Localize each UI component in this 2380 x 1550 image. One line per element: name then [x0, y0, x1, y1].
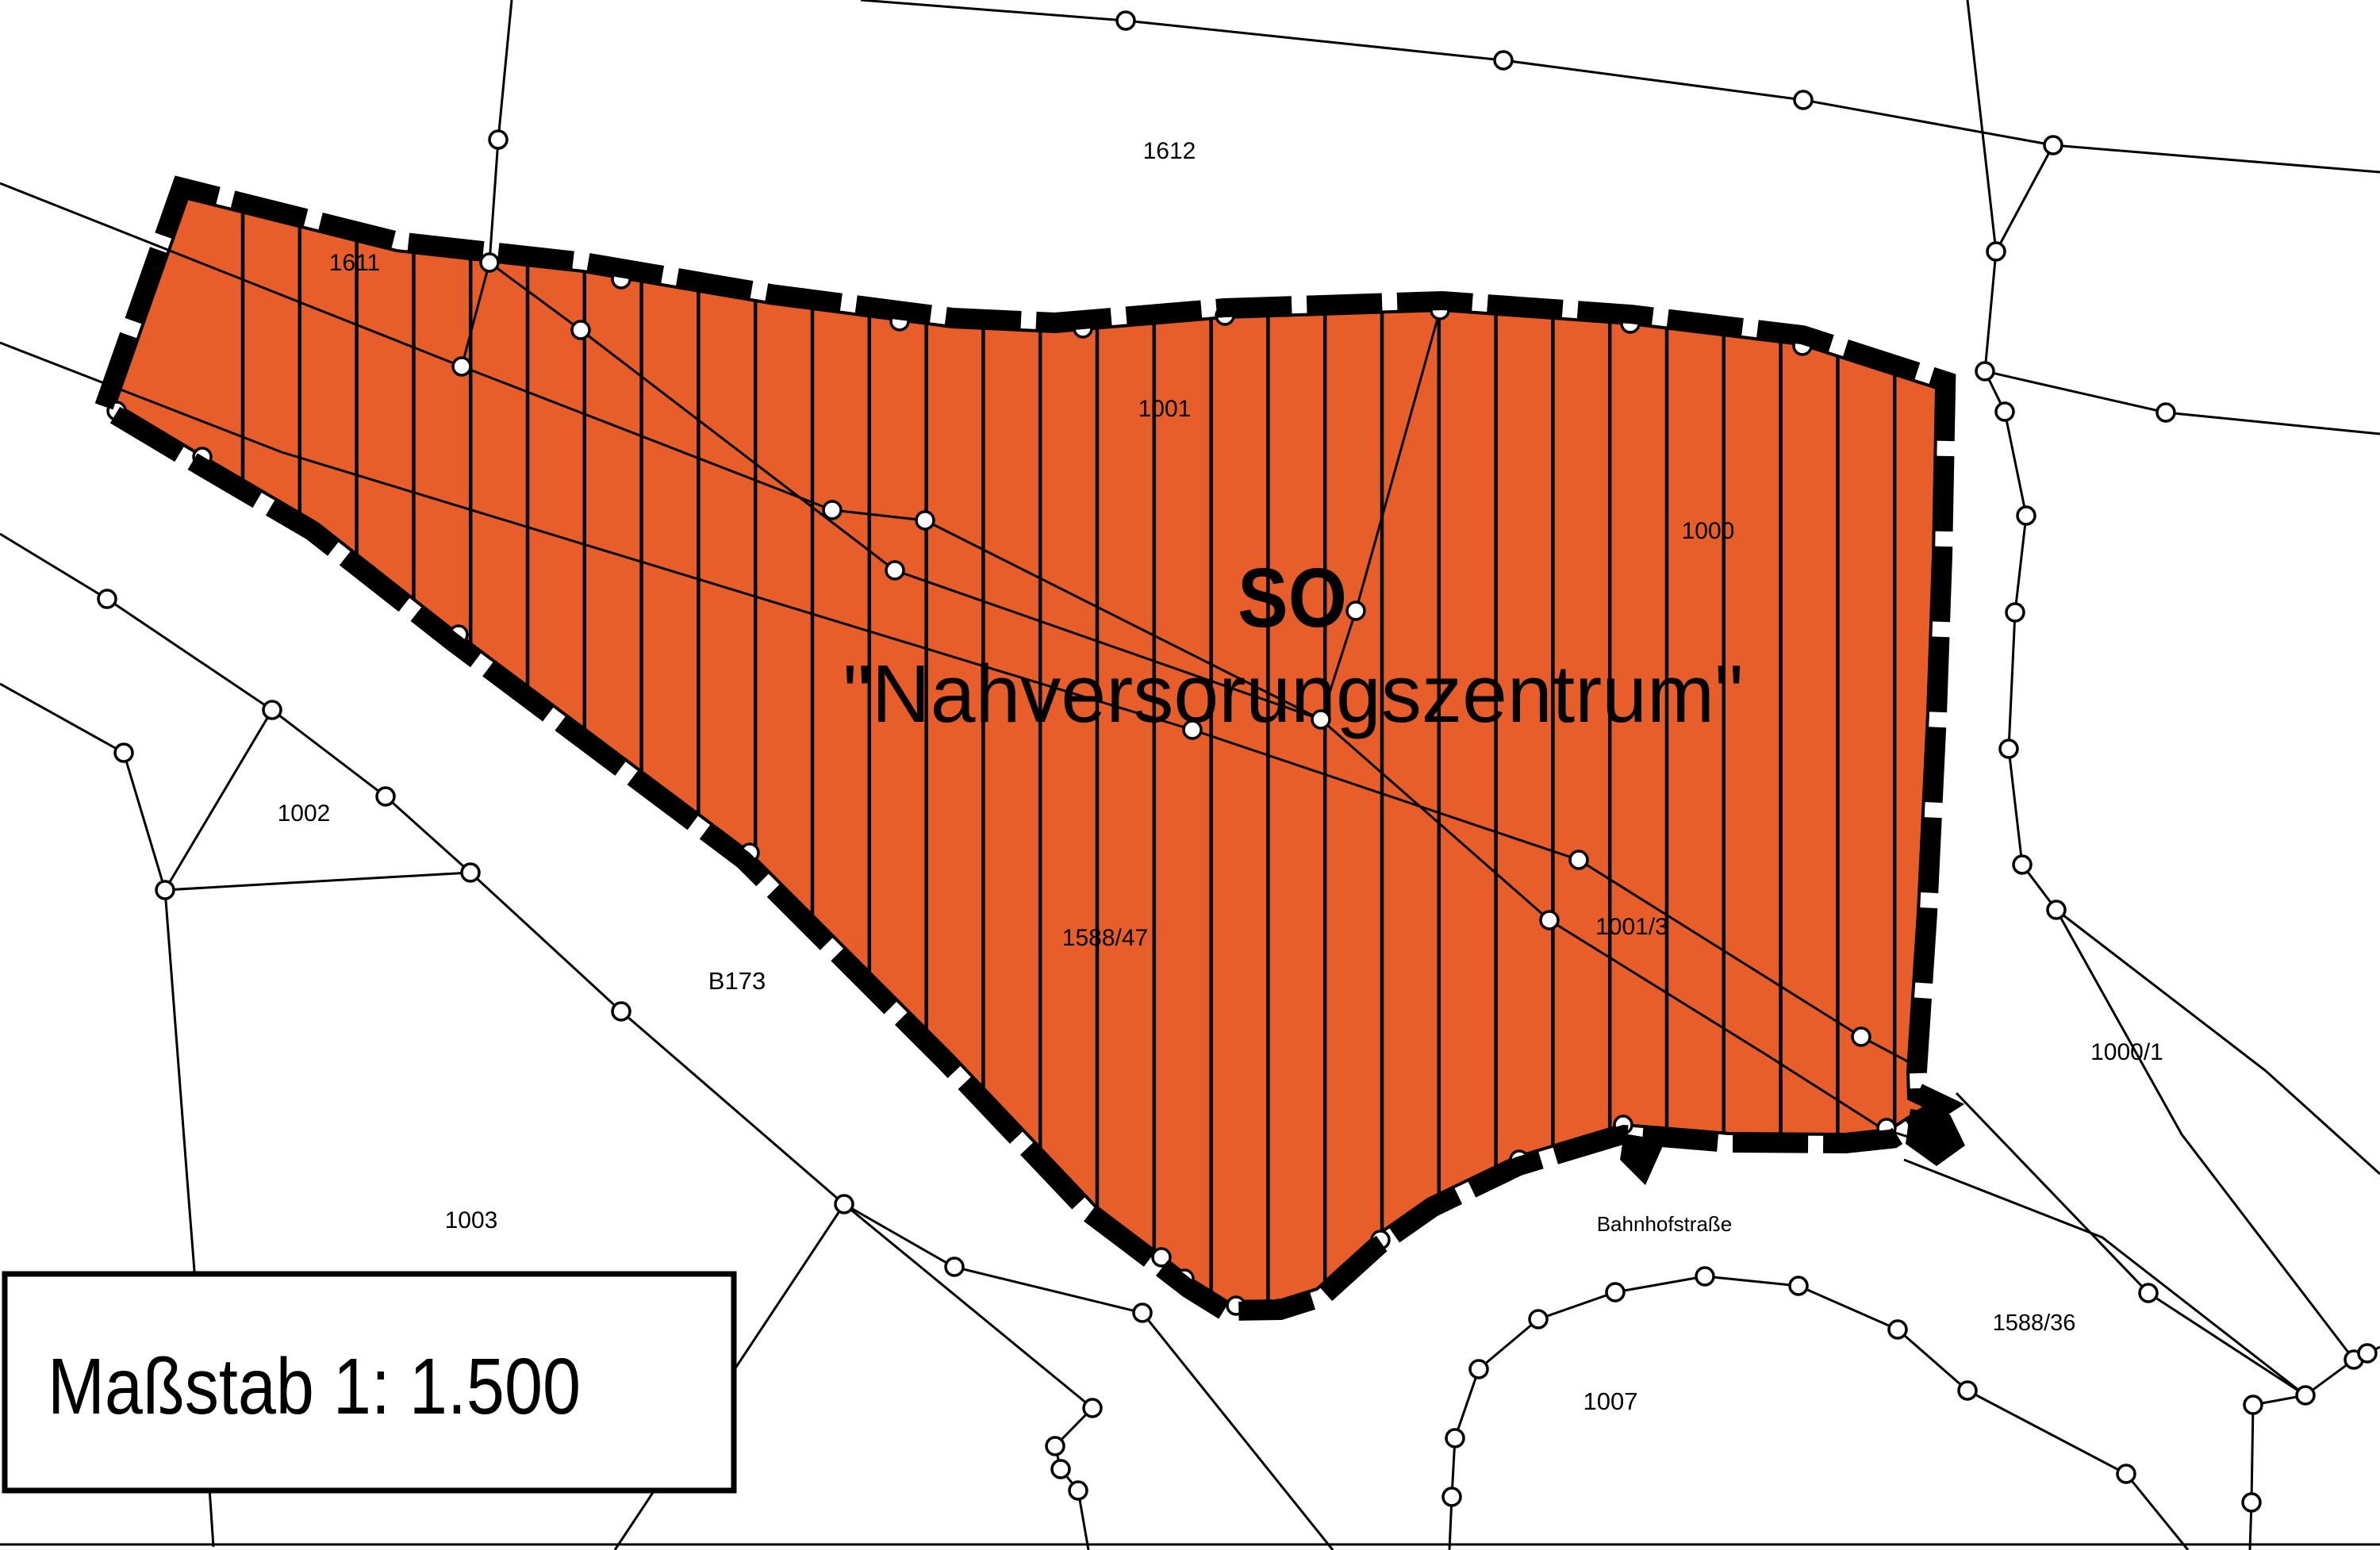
svg-text:1611: 1611: [329, 250, 381, 276]
svg-text:1588/36: 1588/36: [1993, 1310, 2076, 1336]
svg-text:1003: 1003: [445, 1207, 498, 1233]
svg-text:1001/3: 1001/3: [1595, 914, 1668, 940]
svg-text:1002: 1002: [278, 800, 331, 827]
svg-text:Maßstab 1: 1.500: Maßstab 1: 1.500: [48, 1342, 581, 1431]
svg-text:1000/1: 1000/1: [2090, 1039, 2163, 1065]
svg-text:1588/47: 1588/47: [1062, 925, 1148, 951]
svg-text:SO: SO: [1238, 551, 1347, 645]
svg-text:1007: 1007: [1583, 1387, 1638, 1415]
svg-text:1000: 1000: [1682, 518, 1735, 544]
svg-text:Bahnhofstraße: Bahnhofstraße: [1597, 1212, 1733, 1236]
svg-text:B173: B173: [708, 967, 766, 995]
svg-text:"Nahversorungszentrum": "Nahversorungszentrum": [843, 648, 1744, 739]
svg-text:1001: 1001: [1138, 396, 1192, 422]
svg-text:1612: 1612: [1143, 138, 1196, 164]
